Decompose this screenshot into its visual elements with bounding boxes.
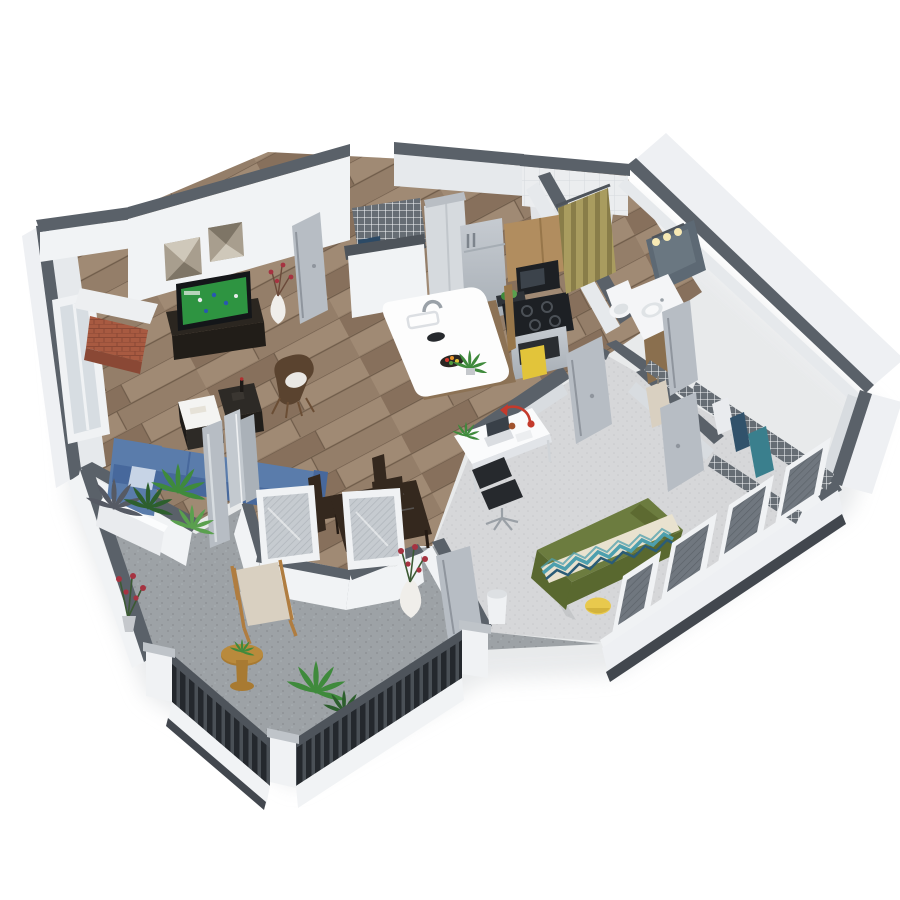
wall-art-right: [208, 222, 244, 262]
clay-pot: [509, 423, 516, 430]
bay-window-right: [342, 488, 406, 570]
yellow-towel: [520, 345, 547, 380]
railing-post-middle: [267, 728, 299, 788]
wine-bottle: [240, 380, 243, 392]
floorplan-3d-render: 3D isometric cutaway floor plan renderin…: [0, 0, 900, 900]
railing-post-right: [459, 620, 491, 678]
bay-window-left: [256, 485, 320, 567]
sofa-pillow: [128, 466, 156, 490]
wall-art-left: [164, 237, 202, 281]
waste-bin: [487, 589, 507, 624]
railing-post-left: [143, 642, 175, 702]
